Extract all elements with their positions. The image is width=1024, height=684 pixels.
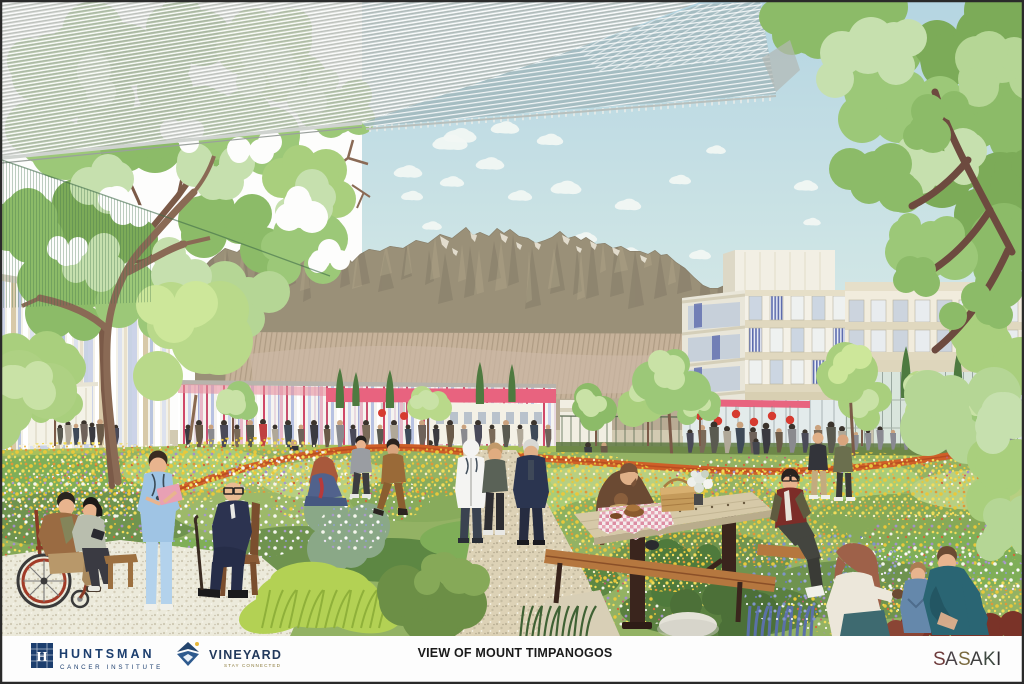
svg-text:STAY CONNECTED: STAY CONNECTED — [224, 663, 281, 668]
svg-text:VIEW OF MOUNT TIMPANOGOS: VIEW OF MOUNT TIMPANOGOS — [418, 646, 613, 660]
svg-text:H: H — [37, 650, 48, 665]
svg-text:S: S — [958, 649, 971, 670]
svg-text:VINEYARD: VINEYARD — [209, 648, 282, 662]
svg-text:CANCER INSTITUTE: CANCER INSTITUTE — [60, 664, 163, 671]
svg-text:A: A — [970, 649, 983, 670]
svg-text:HUNTSMAN: HUNTSMAN — [59, 647, 155, 661]
svg-text:K: K — [983, 649, 996, 670]
svg-text:I: I — [996, 649, 1001, 670]
svg-text:A: A — [945, 649, 958, 670]
svg-text:S: S — [933, 649, 946, 670]
